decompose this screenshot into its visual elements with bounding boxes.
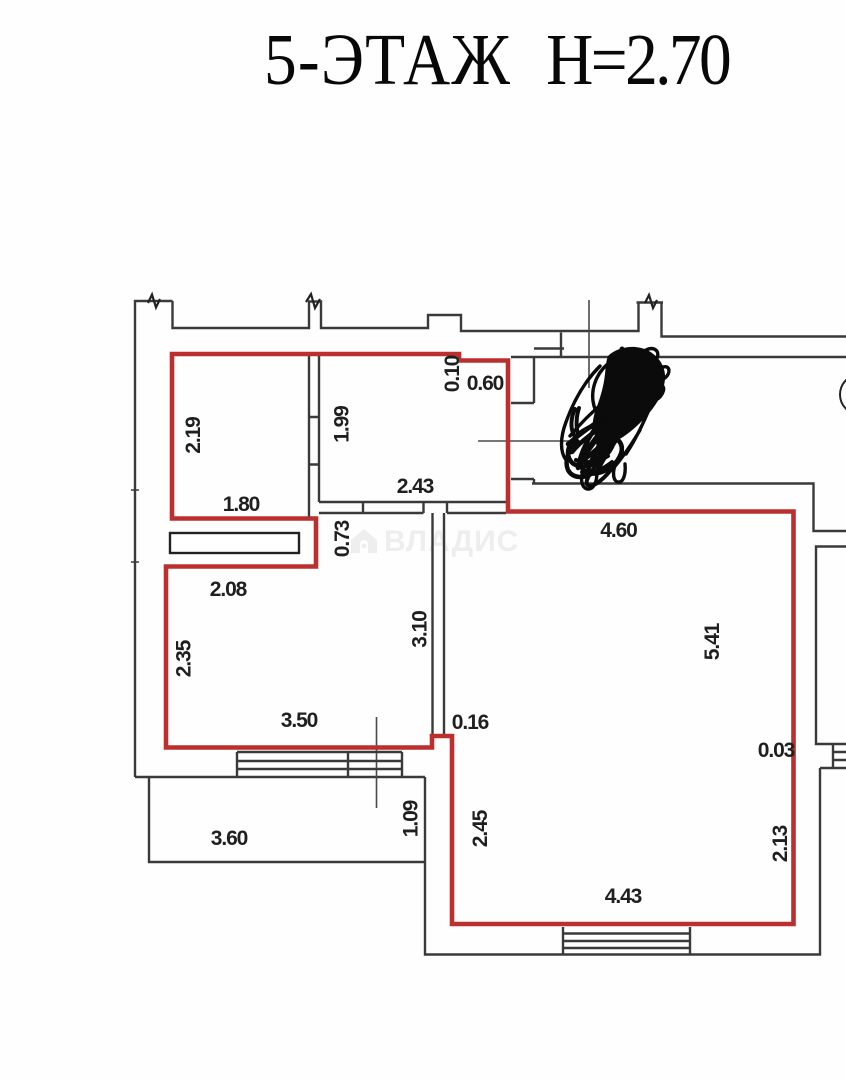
svg-text:3.50: 3.50: [281, 709, 318, 732]
svg-text:0.03: 0.03: [758, 739, 795, 762]
svg-text:5.41: 5.41: [701, 622, 724, 660]
svg-text:3.10: 3.10: [409, 611, 432, 648]
svg-text:0.16: 0.16: [452, 711, 489, 734]
svg-text:4.43: 4.43: [605, 885, 642, 908]
svg-text:0.10: 0.10: [441, 355, 464, 392]
svg-text:2.19: 2.19: [182, 417, 205, 454]
svg-text:1.99: 1.99: [331, 406, 354, 443]
svg-text:0.60: 0.60: [467, 372, 504, 395]
svg-text:0.73: 0.73: [331, 520, 354, 557]
svg-text:2.35: 2.35: [173, 639, 196, 677]
svg-text:1.80: 1.80: [223, 493, 260, 516]
svg-text:2.13: 2.13: [769, 825, 792, 862]
svg-text:2.43: 2.43: [397, 475, 434, 498]
svg-text:3.60: 3.60: [211, 827, 248, 850]
svg-text:2.08: 2.08: [210, 578, 248, 601]
svg-text:2.45: 2.45: [469, 809, 492, 847]
svg-text:1.09: 1.09: [400, 800, 423, 837]
svg-text:ВЛАДИС: ВЛАДИС: [384, 525, 519, 558]
svg-text:4.60: 4.60: [600, 519, 637, 542]
